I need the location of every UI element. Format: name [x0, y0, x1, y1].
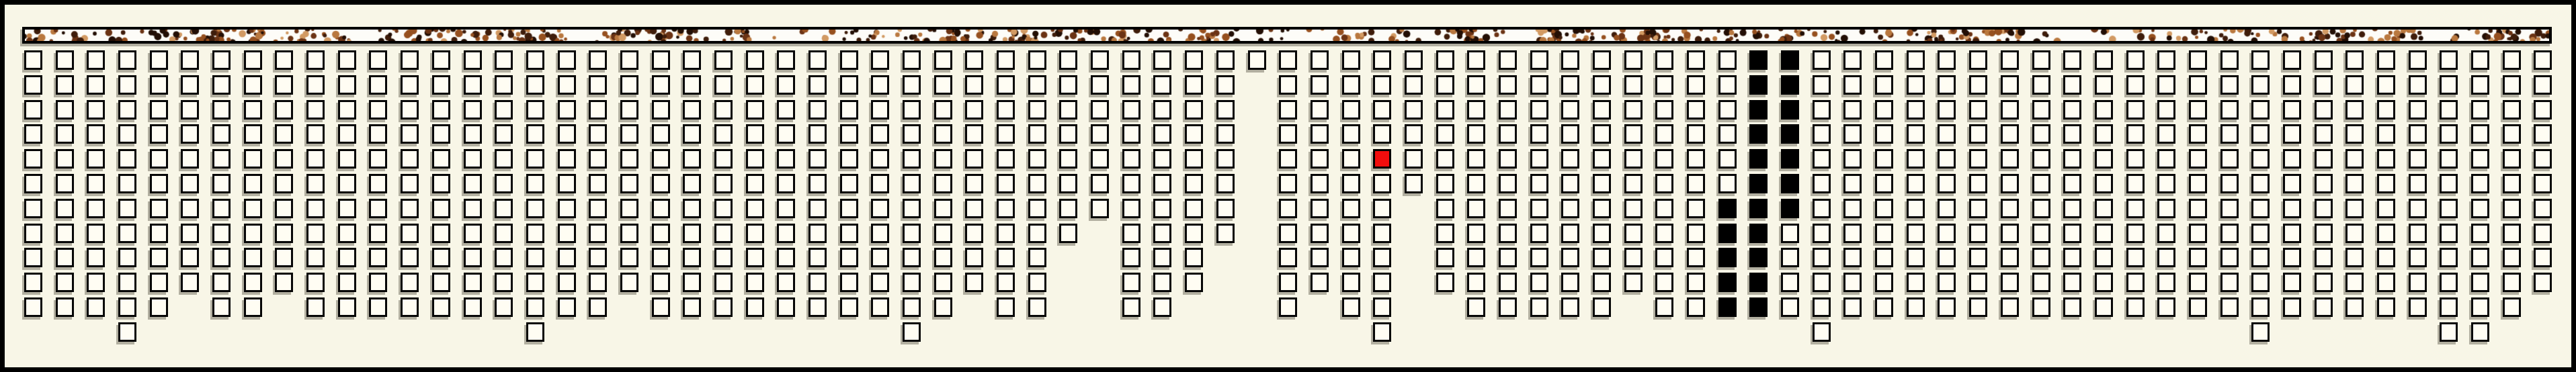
grid-cell [1373, 322, 1391, 342]
grid-cell [2063, 50, 2081, 70]
grid-cell [1405, 149, 1423, 169]
grid-cell [2440, 199, 2458, 218]
grid-cell [2095, 199, 2113, 218]
grid-cell [118, 75, 136, 95]
grid-cell [526, 50, 544, 70]
grid-cell [1938, 50, 1956, 70]
grid-cell [558, 75, 576, 95]
grid-cell [1687, 174, 1705, 193]
grid-cell [2377, 50, 2395, 70]
grid-cell [2126, 50, 2145, 70]
grid-cell [495, 224, 513, 243]
grid-cell [683, 248, 701, 267]
grid-cell [1342, 75, 1360, 95]
grid-cell [2095, 149, 2113, 169]
grid-cell [1311, 100, 1329, 120]
grid-cell [777, 149, 795, 169]
grid-cell [212, 273, 231, 292]
grid-cell [558, 149, 576, 169]
grid-cell [24, 149, 42, 169]
grid-cell [401, 224, 419, 243]
grid-cell [2471, 248, 2489, 267]
grid-cell [1843, 75, 1862, 95]
grid-cell [118, 273, 136, 292]
grid-cell [1875, 100, 1893, 120]
grid-cell [746, 248, 764, 267]
grid-cell [244, 124, 262, 144]
grid-cell [1122, 248, 1140, 267]
grid-cell [1185, 199, 1203, 218]
grid-cell [1216, 75, 1235, 95]
grid-cell [683, 297, 701, 317]
grid-cell [1687, 199, 1705, 218]
grid-cell [2440, 248, 2458, 267]
grid-cell [2001, 297, 2019, 317]
grid-cell [2220, 174, 2239, 193]
grid-cell [1373, 199, 1391, 218]
grid-cell-black [1781, 174, 1799, 193]
grid-cell [2189, 297, 2207, 317]
grid-cell [464, 75, 482, 95]
grid-cell [306, 297, 325, 317]
grid-cell [1153, 174, 1171, 193]
grid-cell [1907, 149, 1925, 169]
grid-cell [369, 124, 387, 144]
grid-cell [1122, 124, 1140, 144]
grid-cell [1311, 50, 1329, 70]
grid-cell [871, 224, 889, 243]
grid-cell [2001, 248, 2019, 267]
grid-cell [2283, 75, 2301, 95]
grid-cell-black [1781, 199, 1799, 218]
grid-cell [1499, 124, 1517, 144]
grid-cell [2001, 174, 2019, 193]
grid-cell [244, 50, 262, 70]
grid-cell [244, 149, 262, 169]
grid-cell [2377, 199, 2395, 218]
grid-cell [2095, 124, 2113, 144]
grid-cell [934, 75, 952, 95]
grid-cell [1593, 100, 1611, 120]
grid-cell [2409, 149, 2427, 169]
grid-cell [1938, 297, 1956, 317]
grid-cell [1028, 199, 1046, 218]
grid-cell [526, 248, 544, 267]
grid-cell [150, 50, 168, 70]
grid-cell [2534, 174, 2552, 193]
grid-cell [150, 297, 168, 317]
figure-canvas [0, 0, 2576, 372]
grid-cell [1153, 199, 1171, 218]
grid-cell [1373, 248, 1391, 267]
grid-cell [1907, 199, 1925, 218]
grid-cell [1781, 248, 1799, 267]
grid-cell [2315, 199, 2333, 218]
grid-cell [1436, 273, 1454, 292]
grid-cell [2534, 149, 2552, 169]
grid-cell [1813, 322, 1831, 342]
grid-cell [840, 224, 858, 243]
grid-cell [1499, 100, 1517, 120]
grid-cell [1530, 248, 1548, 267]
grid-cell [1875, 199, 1893, 218]
grid-cell [2315, 149, 2333, 169]
grid-cell [1153, 75, 1171, 95]
grid-cell [777, 174, 795, 193]
grid-cell [746, 50, 764, 70]
grid-cell [997, 174, 1015, 193]
grid-cell [2251, 297, 2270, 317]
grid-cell [1875, 248, 1893, 267]
grid-cell [2409, 248, 2427, 267]
grid-cell [808, 100, 827, 120]
grid-cell [2534, 224, 2552, 243]
grid-cell [24, 100, 42, 120]
grid-cell [1561, 50, 1579, 70]
grid-cell [1561, 174, 1579, 193]
grid-cell [1122, 297, 1140, 317]
grid-cell [871, 50, 889, 70]
grid-cell [1875, 124, 1893, 144]
grid-cell [1153, 273, 1171, 292]
grid-cell [1687, 224, 1705, 243]
grid-cell [2471, 124, 2489, 144]
grid-cell [2503, 224, 2521, 243]
grid-cell [1530, 50, 1548, 70]
grid-cell [1781, 273, 1799, 292]
grid-cell [1593, 124, 1611, 144]
grid-cell [808, 174, 827, 193]
grid-cell [2220, 100, 2239, 120]
grid-cell [903, 322, 921, 342]
grid-cell [1059, 50, 1077, 70]
grid-cell [2345, 297, 2364, 317]
grid-cell [558, 273, 576, 292]
grid-cell [1028, 124, 1046, 144]
grid-cell [1813, 149, 1831, 169]
grid-cell [1655, 75, 1673, 95]
grid-cell [965, 273, 983, 292]
grid-cell [714, 100, 733, 120]
grid-cell [2220, 199, 2239, 218]
grid-cell [1530, 75, 1548, 95]
grid-cell [2345, 224, 2364, 243]
grid-cell-black [1718, 248, 1737, 267]
grid-cell [1813, 124, 1831, 144]
grid-cell [56, 100, 74, 120]
grid-cell [2503, 174, 2521, 193]
grid-cell [1091, 50, 1109, 70]
grid-cell [620, 174, 638, 193]
grid-cell [652, 224, 670, 243]
grid-cell [808, 248, 827, 267]
grid-cell-black [1749, 224, 1768, 243]
grid-cell [181, 224, 199, 243]
grid-cell [275, 149, 293, 169]
grid-cell [1843, 50, 1862, 70]
grid-cell [306, 149, 325, 169]
grid-cell [2251, 322, 2270, 342]
grid-cell [1185, 248, 1203, 267]
grid-cell [1405, 124, 1423, 144]
grid-cell [2251, 100, 2270, 120]
grid-cell [2503, 124, 2521, 144]
grid-cell [306, 199, 325, 218]
grid-cell [1969, 199, 1987, 218]
grid-cell [808, 199, 827, 218]
grid-cell [2063, 75, 2081, 95]
grid-cell [275, 224, 293, 243]
grid-cell [369, 297, 387, 317]
grid-cell [150, 248, 168, 267]
grid-cell [1185, 100, 1203, 120]
grid-cell [1373, 75, 1391, 95]
grid-cell [244, 75, 262, 95]
grid-cell [338, 149, 356, 169]
grid-cell [1279, 199, 1297, 218]
grid-cell-black [1749, 75, 1768, 95]
grid-cell [714, 297, 733, 317]
grid-cell [1342, 273, 1360, 292]
grid-cell [903, 149, 921, 169]
grid-cell [2345, 100, 2364, 120]
grid-cell [2095, 297, 2113, 317]
grid-cell [1436, 149, 1454, 169]
grid-cell [2157, 224, 2175, 243]
grid-cell [808, 224, 827, 243]
grid-cell [24, 297, 42, 317]
grid-cell [2471, 273, 2489, 292]
grid-cell [2032, 124, 2050, 144]
grid-cell [1028, 100, 1046, 120]
grid-cell [965, 75, 983, 95]
grid-cell [2440, 124, 2458, 144]
grid-cell-black [1718, 199, 1737, 218]
grid-cell [212, 149, 231, 169]
grid-cell [652, 124, 670, 144]
grid-cell [2032, 273, 2050, 292]
grid-cell [1938, 149, 1956, 169]
grid-cell [87, 50, 105, 70]
grid-cell [2220, 149, 2239, 169]
grid-cell [338, 297, 356, 317]
grid-cell [2126, 124, 2145, 144]
grid-cell-black [1749, 100, 1768, 120]
grid-cell [652, 273, 670, 292]
grid-cell [558, 124, 576, 144]
grid-cell [495, 297, 513, 317]
grid-cell [1153, 149, 1171, 169]
grid-cell [1216, 50, 1235, 70]
grid-cell [526, 224, 544, 243]
grid-cell [1373, 224, 1391, 243]
grid-cell [2440, 322, 2458, 342]
grid-cell [620, 100, 638, 120]
grid-cell [1718, 124, 1737, 144]
grid-cell [24, 199, 42, 218]
grid-cell [1938, 199, 1956, 218]
grid-cell [1907, 50, 1925, 70]
grid-cell [2063, 297, 2081, 317]
grid-cell [244, 199, 262, 218]
grid-cell [1499, 199, 1517, 218]
grid-cell [1311, 149, 1329, 169]
grid-cell [2063, 248, 2081, 267]
grid-cell [589, 174, 607, 193]
grid-cell [683, 224, 701, 243]
grid-cell [432, 224, 450, 243]
grid-cell [1311, 75, 1329, 95]
grid-cell [2409, 297, 2427, 317]
grid-cell [1969, 297, 1987, 317]
grid-cell [1655, 124, 1673, 144]
grid-cell [338, 124, 356, 144]
grid-cell [87, 124, 105, 144]
grid-cell [56, 248, 74, 267]
grid-cell [1561, 199, 1579, 218]
grid-cell [1530, 224, 1548, 243]
grid-cell [369, 50, 387, 70]
grid-cell [1436, 75, 1454, 95]
grid-cell [558, 224, 576, 243]
grid-cell [2189, 248, 2207, 267]
grid-cell [56, 174, 74, 193]
grid-cell [934, 124, 952, 144]
grid-cell [306, 75, 325, 95]
grid-cell [526, 124, 544, 144]
grid-cell [2471, 297, 2489, 317]
grid-cell [1593, 50, 1611, 70]
grid-cell-black [1781, 149, 1799, 169]
grid-cell [401, 297, 419, 317]
grid-cell [1655, 297, 1673, 317]
grid-cell [2534, 124, 2552, 144]
grid-cell [2251, 199, 2270, 218]
grid-cell [1969, 124, 1987, 144]
grid-cell [965, 50, 983, 70]
grid-cell [2283, 297, 2301, 317]
grid-cell [1907, 248, 1925, 267]
grid-cell [432, 248, 450, 267]
grid-cell [2471, 149, 2489, 169]
grid-cell [2503, 199, 2521, 218]
grid-cell [1718, 50, 1737, 70]
grid-cell [2126, 273, 2145, 292]
grid-cell [1122, 149, 1140, 169]
grid-cell [1813, 199, 1831, 218]
grid-cell [1279, 248, 1297, 267]
grid-cell [1593, 75, 1611, 95]
grid-cell [714, 149, 733, 169]
grid-cell [965, 100, 983, 120]
grid-cell [1655, 273, 1673, 292]
grid-cell [2157, 124, 2175, 144]
grid-cell [1561, 75, 1579, 95]
grid-cell-black [1781, 50, 1799, 70]
grid-cell [746, 124, 764, 144]
grid-cell [840, 273, 858, 292]
grid-cell [589, 273, 607, 292]
grid-cell [464, 224, 482, 243]
grid-cell [903, 75, 921, 95]
grid-cell [2001, 50, 2019, 70]
grid-cell [464, 199, 482, 218]
grid-cell [150, 149, 168, 169]
grid-cell [1499, 75, 1517, 95]
grid-cell [1875, 224, 1893, 243]
grid-cell [1373, 124, 1391, 144]
grid-cell [1655, 174, 1673, 193]
grid-cell [56, 124, 74, 144]
grid-cell [464, 50, 482, 70]
grid-cell [181, 174, 199, 193]
grid-cell [1907, 224, 1925, 243]
grid-cell [2409, 124, 2427, 144]
grid-cell [1655, 199, 1673, 218]
grid-cell [87, 224, 105, 243]
grid-cell [2534, 75, 2552, 95]
grid-cell [244, 273, 262, 292]
grid-cell [1624, 174, 1643, 193]
grid-cell [2283, 199, 2301, 218]
grid-cell [2409, 75, 2427, 95]
grid-cell [997, 149, 1015, 169]
grid-cell [1530, 273, 1548, 292]
grid-cell [1843, 124, 1862, 144]
grid-cell [965, 199, 983, 218]
grid-cell [338, 174, 356, 193]
grid-cell [464, 273, 482, 292]
grid-cell [526, 199, 544, 218]
grid-cell [2251, 248, 2270, 267]
grid-cell [2001, 224, 2019, 243]
grid-cell [1781, 297, 1799, 317]
grid-cell [306, 50, 325, 70]
grid-cell [2409, 273, 2427, 292]
grid-cell [1875, 273, 1893, 292]
grid-cell [1185, 224, 1203, 243]
grid-cell [903, 273, 921, 292]
grid-cell [2189, 75, 2207, 95]
grid-cell [1561, 297, 1579, 317]
grid-cell [2471, 199, 2489, 218]
grid-cell [1153, 224, 1171, 243]
grid-cell [369, 149, 387, 169]
grid-cell [1687, 273, 1705, 292]
grid-cell [2283, 124, 2301, 144]
grid-cell [589, 149, 607, 169]
grid-cell [1593, 297, 1611, 317]
grid-cell [87, 248, 105, 267]
grid-cell [1718, 149, 1737, 169]
grid-cell [118, 248, 136, 267]
grid-cell [714, 273, 733, 292]
grid-cell [997, 50, 1015, 70]
grid-cell [777, 224, 795, 243]
grid-cell [2471, 100, 2489, 120]
grid-cell [903, 248, 921, 267]
grid-cell [2032, 248, 2050, 267]
grid-cell [495, 273, 513, 292]
grid-cell [589, 75, 607, 95]
grid-cell [2126, 174, 2145, 193]
grid-cell [808, 124, 827, 144]
grid-cell [934, 174, 952, 193]
grid-cell [181, 100, 199, 120]
grid-cell [714, 75, 733, 95]
grid-cell [558, 199, 576, 218]
grid-cell [275, 174, 293, 193]
